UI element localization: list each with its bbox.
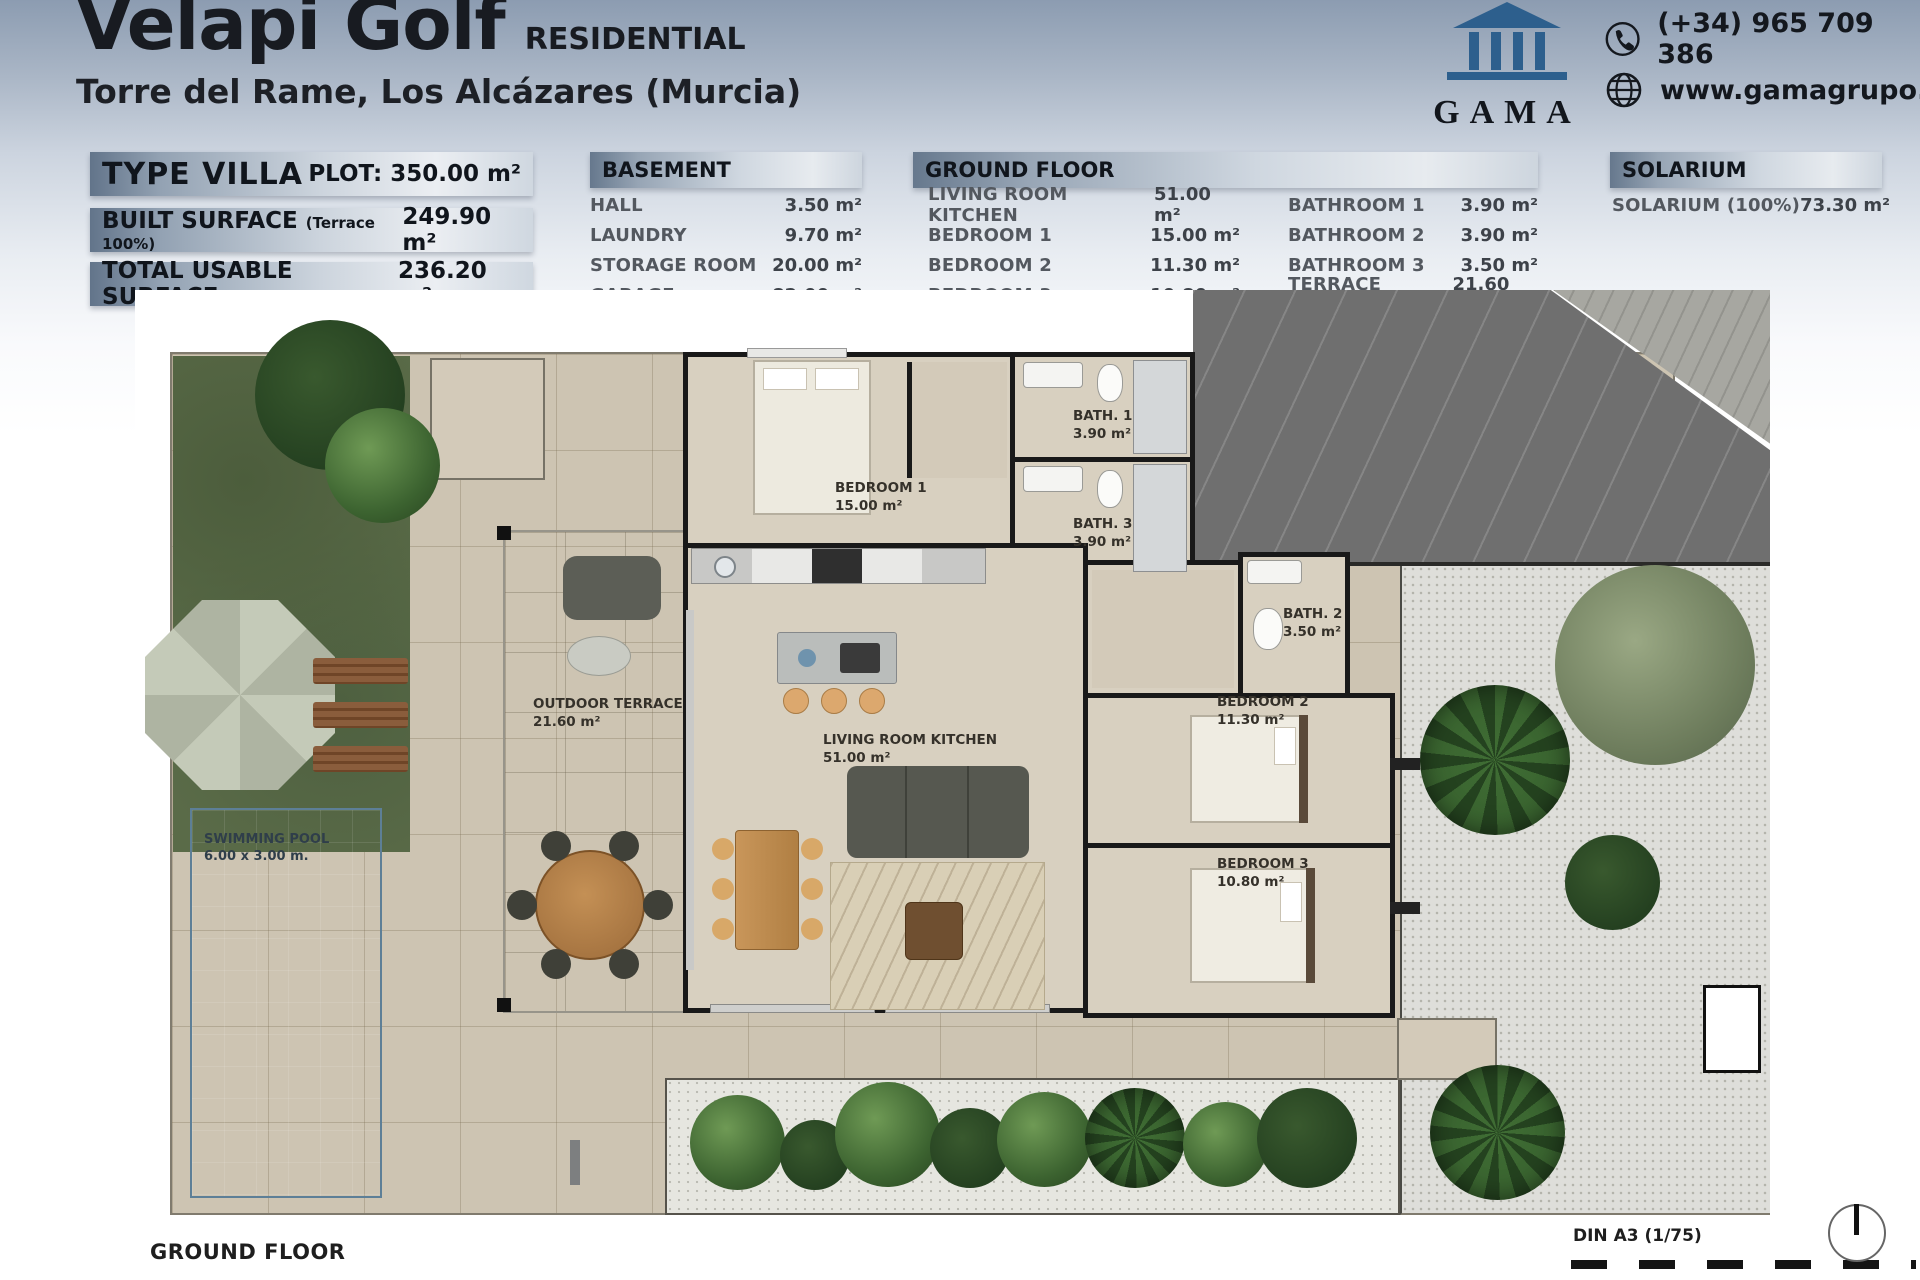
built-surface-value: 249.90 m² xyxy=(402,204,521,256)
solarium-header: SOLARIUM xyxy=(1610,152,1882,188)
room-label-living: LIVING ROOM KITCHEN51.00 m² xyxy=(823,732,997,767)
type-villa-bar: TYPE VILLA PLOT: 350.00 m² xyxy=(90,152,533,196)
outdoor-shower xyxy=(570,1140,580,1185)
gama-logo-text: GAMA xyxy=(1422,94,1592,132)
bed-2 xyxy=(1190,715,1305,823)
wood-bench xyxy=(313,658,408,684)
column xyxy=(497,998,511,1012)
pool-label: SWIMMING POOL 6.00 x 3.00 m. xyxy=(204,832,329,866)
wood-bench xyxy=(313,702,408,728)
lounge-sofa xyxy=(563,556,661,620)
tree xyxy=(835,1082,940,1187)
pillow xyxy=(1274,727,1296,765)
pillow xyxy=(815,368,859,390)
temple-icon xyxy=(1447,2,1567,88)
tree xyxy=(997,1092,1092,1187)
page-subtitle: Torre del Rame, Los Alcázares (Murcia) xyxy=(76,72,801,111)
page-title: Velapi Golf xyxy=(76,0,505,66)
table-row: HALL3.50 m² xyxy=(590,190,862,220)
dining-chair xyxy=(712,918,734,940)
cooktop xyxy=(840,643,880,673)
kitchen-sink xyxy=(714,556,736,578)
website-url: www.gamagrupo.es xyxy=(1660,75,1920,106)
tree xyxy=(1183,1102,1268,1187)
table-row: LAUNDRY9.70 m² xyxy=(590,220,862,250)
side-table xyxy=(567,636,631,676)
header: Velapi Golf RESIDENTIAL xyxy=(76,0,746,66)
island-sink xyxy=(798,649,816,667)
website-row: www.gamagrupo.es xyxy=(1604,70,1920,110)
shower xyxy=(1133,360,1187,454)
built-surface-bar: BUILT SURFACE(Terrace 100%) 249.90 m² xyxy=(90,208,533,252)
ground-floor-header: GROUND FLOOR xyxy=(913,152,1538,188)
column xyxy=(497,526,511,540)
chair xyxy=(507,890,537,920)
tree xyxy=(1257,1088,1357,1188)
palm-tree xyxy=(1420,685,1570,835)
room-label-bedroom1: BEDROOM 115.00 m² xyxy=(835,480,927,515)
compass-needle xyxy=(1854,1204,1859,1235)
interior-stairs-top xyxy=(907,362,1007,478)
swimming-pool: SWIMMING POOL 6.00 x 3.00 m. xyxy=(190,808,382,1198)
headboard xyxy=(1299,715,1308,823)
chair xyxy=(609,949,639,979)
dining-chair xyxy=(801,878,823,900)
globe-icon xyxy=(1604,70,1644,110)
palm-tree xyxy=(1430,1065,1565,1200)
room-label-bath1: BATH. 13.90 m² xyxy=(1073,408,1132,443)
room-label-bath2: BATH. 23.50 m² xyxy=(1283,606,1342,641)
chair xyxy=(643,890,673,920)
kitchen-counter xyxy=(691,548,986,584)
room-label-terrace: OUTDOOR TERRACE21.60 m² xyxy=(533,696,683,731)
palm-tree xyxy=(1085,1088,1185,1188)
vanity-sink xyxy=(1247,560,1302,584)
coffee-table xyxy=(905,902,963,960)
phone-icon xyxy=(1604,19,1641,59)
toilet xyxy=(1253,608,1283,650)
gama-logo: GAMA xyxy=(1422,2,1592,132)
main-staircase xyxy=(1092,570,1234,688)
floor-plan: SWIMMING POOL 6.00 x 3.00 m. xyxy=(135,290,1770,1235)
table-row: BATHROOM 23.90 m² xyxy=(1288,220,1538,250)
chair xyxy=(609,831,639,861)
plot-value: PLOT: 350.00 m² xyxy=(308,161,521,187)
basement-header: BASEMENT xyxy=(590,152,862,188)
kitchen-island xyxy=(777,632,897,684)
vanity-sink xyxy=(1023,466,1083,492)
table-row: BEDROOM 211.30 m² xyxy=(928,250,1240,280)
north-compass-icon xyxy=(1828,1204,1886,1262)
sofa xyxy=(847,766,1029,858)
door-frame xyxy=(1390,758,1420,770)
chair xyxy=(541,949,571,979)
table-row: SOLARIUM (100%)73.30 m² xyxy=(1612,190,1890,220)
built-surface-label: BUILT SURFACE(Terrace 100%) xyxy=(102,208,402,253)
table-row: LIVING ROOM KITCHEN51.00 m² xyxy=(928,190,1240,220)
sheet-scale-note: DIN A3 (1/75) xyxy=(1573,1226,1702,1246)
dining-chair xyxy=(712,878,734,900)
parasol xyxy=(145,600,335,790)
tree xyxy=(1555,565,1755,765)
tree xyxy=(325,408,440,523)
window xyxy=(747,348,847,358)
stool xyxy=(821,688,847,714)
phone-row: (+34) 965 709 386 xyxy=(1604,8,1920,70)
dining-chair xyxy=(712,838,734,860)
phone-number: (+34) 965 709 386 xyxy=(1657,8,1920,70)
dining-table xyxy=(735,830,799,950)
scale-bar xyxy=(1571,1260,1916,1269)
glass-wall xyxy=(686,610,694,970)
wood-bench xyxy=(313,746,408,772)
entry-stairs xyxy=(430,358,545,480)
bush xyxy=(1565,835,1660,930)
stool xyxy=(783,688,809,714)
table-row: STORAGE ROOM20.00 m² xyxy=(590,250,862,280)
chair xyxy=(541,831,571,861)
room-label-bedroom3: BEDROOM 310.80 m² xyxy=(1217,856,1309,891)
type-villa-label: TYPE VILLA xyxy=(102,157,303,192)
vanity-sink xyxy=(1023,362,1083,388)
brochure-page: Velapi Golf RESIDENTIAL Torre del Rame, … xyxy=(0,0,1920,1280)
pillow xyxy=(763,368,807,390)
tree xyxy=(690,1095,785,1190)
room-label-bedroom2: BEDROOM 211.30 m² xyxy=(1217,694,1309,729)
table-row: BATHROOM 13.90 m² xyxy=(1288,190,1538,220)
utility-pad xyxy=(1703,985,1761,1073)
solarium-table: SOLARIUM (100%)73.30 m² xyxy=(1612,190,1890,220)
room-label-bath3: BATH. 33.90 m² xyxy=(1073,516,1132,551)
stool xyxy=(859,688,885,714)
page-title-tag: RESIDENTIAL xyxy=(525,22,746,57)
dining-chair xyxy=(801,918,823,940)
round-table xyxy=(535,850,645,960)
toilet xyxy=(1097,470,1123,508)
dining-chair xyxy=(801,838,823,860)
shower xyxy=(1133,464,1187,572)
toilet xyxy=(1097,364,1123,402)
plan-caption: GROUND FLOOR xyxy=(150,1240,345,1264)
door-frame xyxy=(1390,902,1420,914)
